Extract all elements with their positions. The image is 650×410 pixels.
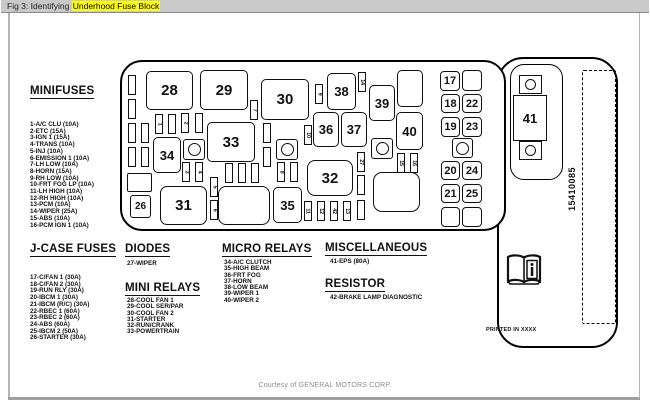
relay-slot-31: 31 — [160, 186, 207, 225]
left-frame-line — [8, 13, 10, 397]
legend-item: 42-BRAKE LAMP DIAGNOSTIC — [330, 295, 422, 302]
minifuse-empty — [128, 147, 136, 167]
minifuse-5: 5 — [210, 177, 218, 197]
minifuse-3: 3 — [182, 162, 190, 182]
round-terminal-slot — [276, 139, 298, 160]
minifuse-7: 7 — [250, 100, 258, 120]
minifuse-2: 2 — [181, 113, 189, 133]
minifuses-heading: MINIFUSES — [30, 85, 94, 99]
relay-slot-28: 28 — [146, 71, 193, 110]
round-terminal-slot — [371, 138, 393, 159]
legend-item: 26-STARTER (30A) — [30, 335, 89, 342]
bottom-frame-line — [8, 397, 640, 400]
terminal-circle-icon — [456, 142, 469, 155]
relay-slot-35: 35 — [273, 187, 302, 223]
jcase-empty-slot — [462, 207, 482, 227]
minifuse-empty — [263, 123, 271, 143]
courtesy-credit: Courtesy of GENERAL MOTORS CORP. — [0, 382, 650, 389]
jcase-empty-slot — [441, 207, 460, 227]
relay-slot-33: 33 — [207, 122, 255, 162]
jcase-fuse-17: 17 — [440, 71, 460, 91]
mini-relays-heading: MINI RELAYS — [125, 282, 200, 296]
minifuse-empty — [168, 114, 176, 134]
relay-slot-38: 38 — [327, 73, 356, 110]
minifuse-empty — [128, 123, 136, 143]
terminal-circle-icon — [188, 143, 201, 156]
printed-in-note: PRINTED IN XXXX — [486, 327, 536, 333]
minifuse-6: 6 — [210, 200, 218, 220]
minifuse-empty — [251, 163, 259, 183]
minifuse-empty — [357, 200, 365, 220]
legend-item: 40-WIPER 2 — [224, 298, 272, 304]
minifuse-27: 27 — [357, 152, 365, 172]
round-terminal-slot — [183, 139, 205, 160]
unlabeled-slot — [397, 70, 423, 107]
minifuse-empty — [128, 75, 136, 95]
right-frame-line — [639, 13, 641, 397]
minifuse-4: 4 — [195, 162, 203, 182]
miscellaneous-list: 41-EPS (80A) — [330, 259, 369, 266]
minifuses-list: 1-A/C CLU (10A)2-ETC (15A)3-IGN 1 (15A)4… — [30, 122, 94, 229]
minifuse-8: 8 — [277, 162, 285, 182]
terminal-circle-icon — [376, 142, 389, 155]
mini-relays-list: 28-COOL FAN 129-COOL SER/PAR30-COOL FAN … — [127, 298, 183, 336]
figure-page: Fig 3: Identifying Underhood Fuse Block … — [0, 0, 650, 410]
mega-fuse-41: 41 — [513, 95, 547, 141]
resistor-list: 42-BRAKE LAMP DIAGNOSTIC — [330, 295, 422, 302]
minifuse-1: 1 — [155, 114, 163, 134]
minifuse-empty — [128, 99, 136, 119]
figure-title-bar: Fig 3: Identifying Underhood Fuse Block — [1, 0, 649, 13]
minifuse-empty — [195, 113, 203, 133]
relay-slot-39: 39 — [369, 85, 395, 121]
jcase-fuse-21: 21 — [441, 184, 460, 203]
jcase-fuse-25: 25 — [462, 184, 482, 203]
unlabeled-slot — [373, 172, 420, 212]
minifuse-empty — [141, 123, 149, 143]
mega-fuse-terminal-bottom — [519, 141, 542, 160]
jcase-fuse-24: 24 — [462, 161, 482, 180]
jcase-fuse-23: 23 — [462, 117, 482, 137]
minifuse-empty — [263, 147, 271, 167]
mega-fuse-terminal-top — [519, 75, 542, 94]
legend-item: 27-WIPER — [127, 261, 157, 268]
minifuse-12: 12 — [317, 201, 325, 221]
j-case-fuses-heading: J-CASE FUSES — [30, 243, 116, 257]
unlabeled-slot — [218, 186, 270, 225]
miscellaneous-heading: MISCELLANEOUS — [325, 242, 427, 256]
resistor-heading: RESISTOR — [325, 278, 385, 292]
relay-slot-26: 26 — [130, 195, 151, 218]
diodes-heading: DIODES — [125, 243, 170, 257]
legend-item: 33-POWERTRAIN — [127, 329, 183, 335]
minifuse-empty — [290, 162, 298, 182]
round-terminal-slot — [452, 138, 473, 158]
minifuse-9: 9 — [315, 84, 323, 104]
relay-slot-37: 37 — [341, 112, 367, 147]
legend-item: 16-PCM IGN 1 (10A) — [30, 223, 94, 230]
minifuse-empty — [141, 147, 149, 167]
minifuse-42: 42 — [330, 201, 338, 221]
jcase-fuse-19: 19 — [441, 117, 460, 137]
minifuse-10: 10 — [304, 125, 312, 145]
diodes-list: 27-WIPER — [127, 261, 157, 268]
minifuse-empty — [238, 163, 246, 183]
relay-slot-34: 34 — [153, 137, 181, 173]
relay-slot-32: 32 — [307, 160, 353, 196]
jcase-fuse-18: 18 — [441, 94, 460, 113]
terminal-bolt-icon — [525, 79, 536, 90]
terminal-circle-icon — [281, 143, 294, 156]
part-number-label: 15410085 — [567, 167, 577, 211]
micro-relays-list: 34-A/C CLUTCH35-HIGH BEAM36-FRT FOG37-HO… — [224, 260, 272, 304]
figure-title-prefix: Fig 3: Identifying — [7, 1, 72, 11]
jcase-empty-slot — [462, 70, 482, 91]
figure-title-highlight: Underhood Fuse Block — [72, 1, 160, 11]
minifuse-empty — [357, 175, 365, 195]
minifuse-15: 15 — [397, 153, 405, 173]
jcase-fuse-20: 20 — [441, 161, 460, 180]
minifuse-14: 14 — [358, 72, 366, 92]
unlabeled-slot — [127, 173, 152, 192]
legend-item: 41-EPS (80A) — [330, 259, 369, 266]
relay-slot-36: 36 — [313, 112, 339, 147]
minifuse-11: 11 — [304, 201, 312, 221]
owners-manual-book-icon — [505, 252, 543, 287]
terminal-bolt-icon — [525, 145, 536, 156]
minifuse-empty — [225, 163, 233, 183]
micro-relays-heading: MICRO RELAYS — [222, 243, 312, 257]
minifuse-13: 13 — [343, 201, 351, 221]
relay-slot-40: 40 — [396, 112, 423, 150]
relay-slot-30: 30 — [261, 79, 309, 120]
label-area-dashed-outline — [582, 70, 616, 324]
jcase-fuse-22: 22 — [462, 94, 482, 113]
minifuse-16: 16 — [410, 153, 418, 173]
j-case-fuses-list: 17-C/FAN 1 (30A)18-C/FAN 2 (30A)19-RUN R… — [30, 275, 89, 342]
relay-slot-29: 29 — [200, 70, 248, 110]
